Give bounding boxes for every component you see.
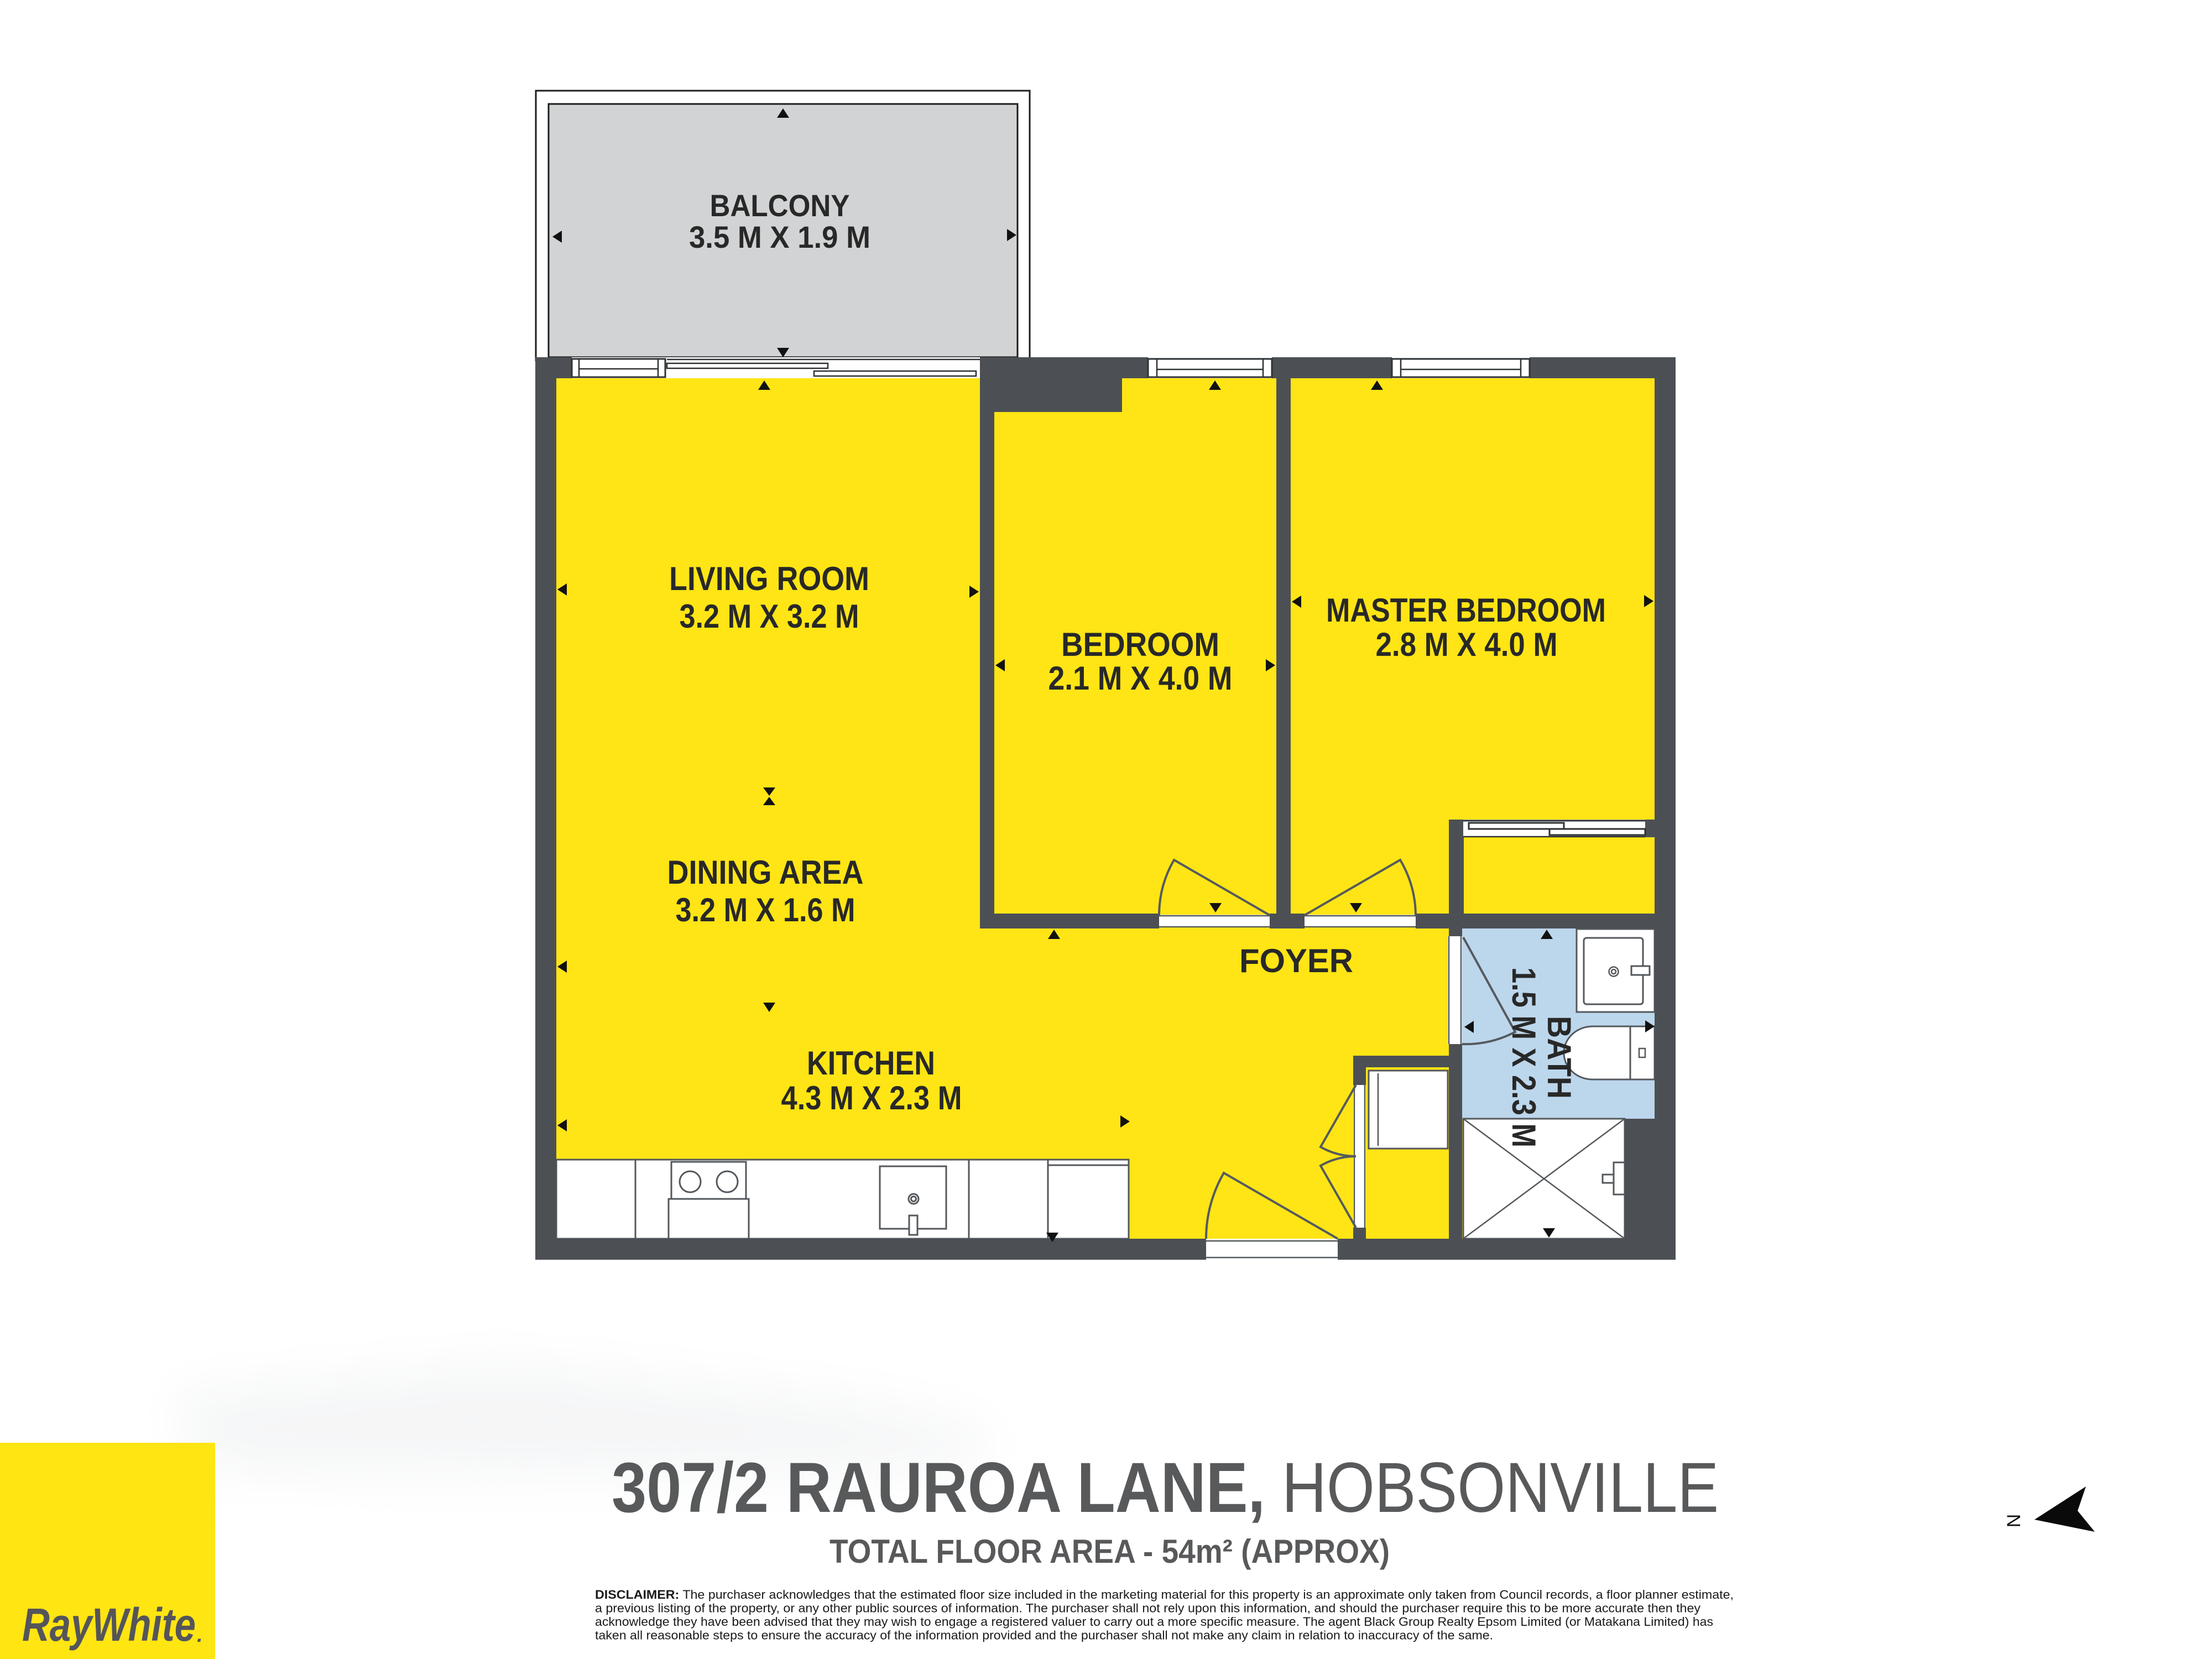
svg-text:DISCLAIMER: The purchaser ackn: DISCLAIMER: The purchaser acknowledges t… bbox=[595, 1588, 1734, 1601]
svg-text:N: N bbox=[2004, 1514, 2025, 1528]
svg-text:2.8 M X 4.0 M: 2.8 M X 4.0 M bbox=[1376, 626, 1558, 663]
svg-text:BALCONY: BALCONY bbox=[710, 188, 850, 223]
svg-text:FOYER: FOYER bbox=[1239, 942, 1353, 979]
svg-text:1.5 M X 2.3 M: 1.5 M X 2.3 M bbox=[1505, 967, 1542, 1147]
svg-text:a previous listing of the prop: a previous listing of the property, or a… bbox=[595, 1601, 1700, 1615]
svg-text:BEDROOM: BEDROOM bbox=[1061, 626, 1219, 663]
svg-text:KITCHEN: KITCHEN bbox=[807, 1045, 935, 1082]
svg-text:HOBSONVILLE: HOBSONVILLE bbox=[1282, 1448, 1719, 1527]
svg-text:3.2 M X 3.2 M: 3.2 M X 3.2 M bbox=[680, 598, 859, 635]
svg-text:TOTAL FLOOR AREA - 54m² (APPRO: TOTAL FLOOR AREA - 54m² (APPROX) bbox=[830, 1533, 1390, 1570]
svg-text:3.2 M X 1.6 M: 3.2 M X 1.6 M bbox=[676, 891, 855, 928]
svg-text:BATH: BATH bbox=[1541, 1016, 1578, 1099]
svg-text:.: . bbox=[197, 1624, 203, 1647]
svg-text:DINING AREA: DINING AREA bbox=[667, 854, 864, 891]
svg-text:RayWhite: RayWhite bbox=[22, 1599, 196, 1651]
svg-text:2.1 M X 4.0 M: 2.1 M X 4.0 M bbox=[1048, 660, 1233, 697]
svg-text:acknowledge they have been adv: acknowledge they have been advised that … bbox=[595, 1615, 1713, 1629]
svg-text:4.3 M X 2.3 M: 4.3 M X 2.3 M bbox=[781, 1079, 962, 1117]
svg-text:taken all reasonable steps to: taken all reasonable steps to ensure the… bbox=[595, 1629, 1493, 1642]
svg-text:3.5 M X 1.9 M: 3.5 M X 1.9 M bbox=[689, 220, 870, 254]
svg-text:307/2 RAUROA LANE,: 307/2 RAUROA LANE, bbox=[612, 1448, 1265, 1527]
svg-text:LIVING ROOM: LIVING ROOM bbox=[669, 560, 869, 597]
svg-text:MASTER BEDROOM: MASTER BEDROOM bbox=[1326, 592, 1606, 629]
